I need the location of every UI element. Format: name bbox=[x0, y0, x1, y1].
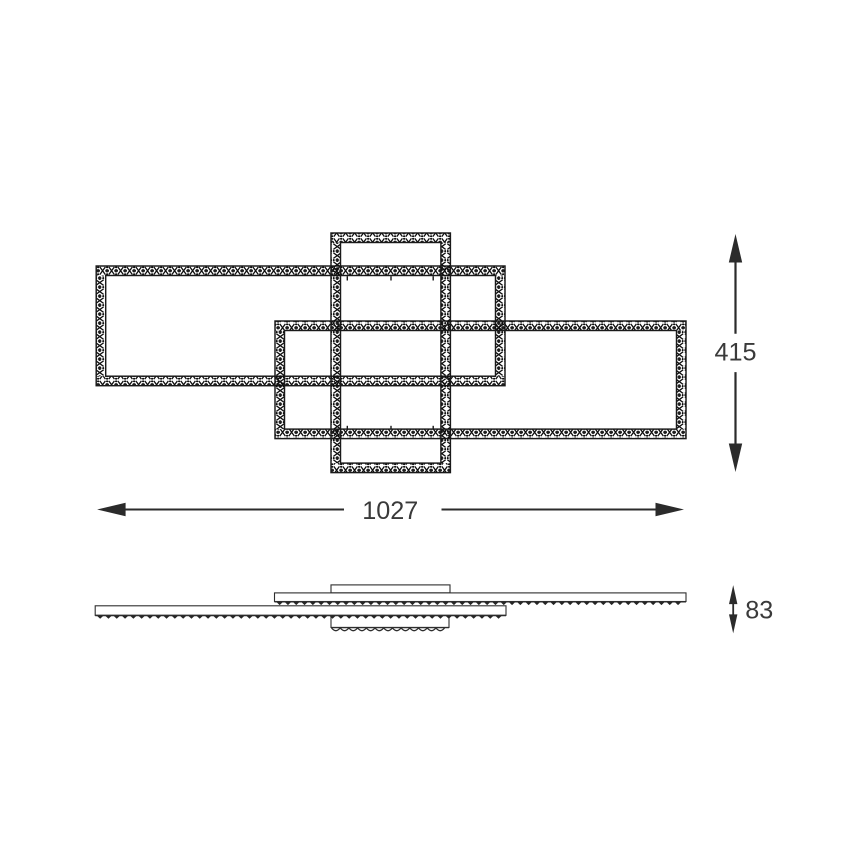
svg-text:83: 83 bbox=[745, 596, 773, 624]
svg-text:1027: 1027 bbox=[362, 497, 418, 525]
svg-text:415: 415 bbox=[714, 339, 756, 367]
